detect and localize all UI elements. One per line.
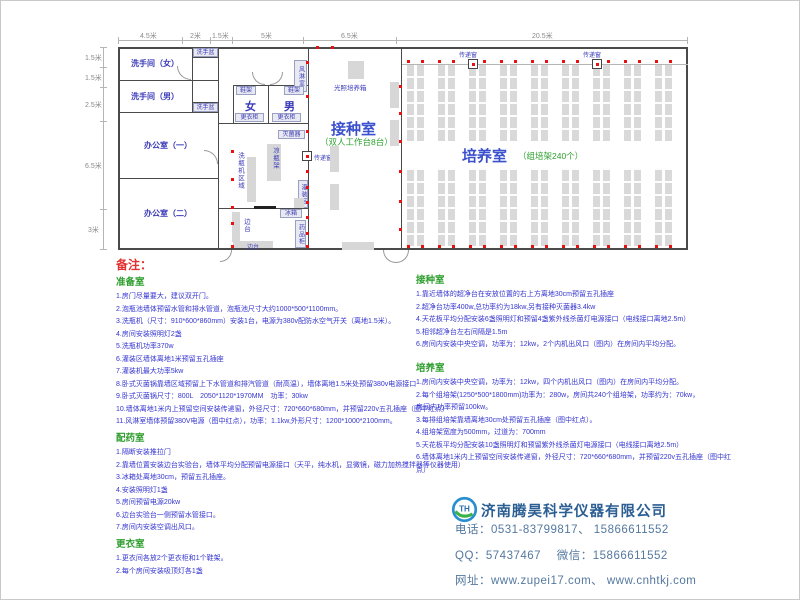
outlet-dot [399,85,402,88]
room-culture-sub: （组培架240个） [518,150,583,162]
notes-section-culture: 培养室 1.房间内安装中央空调，功率为：12kw，四个内机出风口（图内）在房间内… [416,360,734,477]
shoe-rack-2: 鞋架 [284,86,304,95]
notes-list: 1.靠近墙体的超净台在安放位置的右上方离地30cm预留五孔插座2.超净台功率40… [416,289,734,352]
dim-tick [210,37,211,44]
bottle-washer-bench [247,157,256,202]
outlet-dot [231,178,234,181]
company-logo-text: TH [459,504,470,513]
side-bench-label-h: 边台 [247,242,259,251]
notes-heading: 准备室 [116,274,449,288]
side-bench-label-v: 边台 [242,218,249,233]
note-item: 4.房间安装照明灯2盏 [116,329,449,342]
notes-list: 1.隔断安装推拉门2.靠墙位置安装边台实验台，墙体平均分配预留电源接口（天平，纯… [116,447,465,535]
dim-top-6: 20.5米 [532,31,553,41]
culture-shelves-top [407,65,685,141]
clean-bench [390,82,399,108]
note-item: 2.靠墙位置安装边台实验台，墙体平均分配预留电源接口（天平，纯水机，显微镜，磁力… [116,460,465,473]
locker-2: 更衣柜 [272,113,301,122]
sterilizer-label: 灭菌器 [278,130,305,139]
room-male: 男 [284,98,295,114]
note-item: 10.墙体离地1米内上预留空间安装传递窗，外径尺寸：720*660*680mm，… [116,404,449,417]
note-item: 6.边台实验台一侧预留水管接口。 [116,510,465,523]
notes-heading: 培养室 [416,360,734,374]
dim-tick [303,37,304,44]
outlet-dots-row-top [407,60,685,63]
sink-label-bottom: 洗手盆 [193,103,218,112]
fridge-label: 冰箱 [280,209,302,218]
dim-tick [182,37,183,44]
notes-section-dispensing: 配药室 1.隔断安装推拉门2.靠墙位置安装边台实验台，墙体平均分配预留电源接口（… [116,430,465,535]
notes-section-preparation: 准备室 1.房门尽量要大，建议双开门。2.泡瓶池墙体预留水管和排水管道，泡瓶池尺… [116,274,449,429]
note-item: 房间内功率预留100kw。 [416,402,734,415]
dim-line-top [118,40,688,41]
wall [401,47,402,250]
outlet-dot [306,201,309,204]
sink-label-top: 洗手盆 [193,48,218,57]
wall [308,47,309,250]
note-item: 5.洗瓶机功率370w [116,341,449,354]
dim-tick [100,209,107,210]
notes-heading: 接种室 [416,272,734,286]
medicine-cabinet-label: 药品柜 [295,220,306,248]
dim-left-2: 1.5米 [85,73,102,83]
pass-window-2-label: 传递窗 [459,50,477,59]
notes-section-changing: 更衣室 1.更衣间各放2个更衣柜和1个鞋架。2.每个房间安装吸顶灯各1盏 [116,536,228,578]
outlet-dot [316,46,319,49]
dim-top-4: 5米 [261,31,272,41]
company-logo: TH [451,496,478,523]
note-item: 4.组培架宽度为500mm，过道为：700mm [416,427,734,440]
company-qq-wechat: QQ：57437467 微信：15866611552 [455,547,668,563]
remarks-title: 备注： [116,256,152,273]
dim-tick [232,37,233,44]
wall [192,57,218,58]
outlet-dot [231,222,234,225]
dim-tick [100,121,107,122]
dim-tick [396,37,397,44]
dim-tick [118,37,119,44]
dim-left-3: 2.5米 [85,100,102,110]
pass-window-icon [302,151,312,161]
wall [118,80,218,81]
outlet-dot [306,170,309,173]
note-item: 9.卧式灭菌锅尺寸：800L 2050*1120*1970MM 功率：30kw [116,391,449,404]
room-culture: 培养室 [462,145,507,166]
dim-tick [100,87,107,88]
note-item: 1.更衣间各放2个更衣柜和1个鞋架。 [116,553,228,566]
note-item: 6.灌装区墙体离地1米预留五孔插座 [116,354,449,367]
bottle-washer-area-label: 洗瓶机区域 [236,152,243,190]
outlet-dot [306,216,309,219]
dim-top-2: 2米 [190,31,201,41]
company-phone: 电话：0531-83799817、 15866611552 [455,521,669,537]
outlet-dot [399,228,402,231]
dim-left-5: 3米 [88,225,99,235]
wall [268,85,269,123]
dim-tick [687,37,688,44]
note-item: 1.靠近墙体的超净台在安放位置的右上方离地30cm预留五孔插座 [416,289,734,302]
outlet-dots-row-bottom [407,245,685,248]
room-inoculation-sub: （双人工作台8台） [320,136,393,148]
outlet-dot [472,63,475,66]
sliding-door [254,206,276,209]
outlet-dot [231,150,234,153]
note-item: 1.房间内安装中央空调，功率为：12kw，四个内机出风口（图内）在房间内平均分配… [416,377,734,390]
dim-line-left [103,47,104,250]
note-item: 3.每排组培架靠墙离地30cm处预留五孔插座（图中红点）。 [416,415,734,428]
room-office-2: 办公室（二） [118,208,218,219]
clean-bench [342,242,374,250]
cooling-rack-label: 凉瓶架 [271,147,278,170]
outlet-dot [306,232,309,235]
pass-window-icon [468,59,478,69]
culture-shelves-bottom [407,168,685,246]
outlet-dot [399,170,402,173]
notes-list: 1.房间内安装中央空调，功率为：12kw，四个内机出风口（图内）在房间内平均分配… [416,377,734,477]
note-item: 2.每个房间安装吸顶灯各1盏 [116,566,228,579]
dim-top-5: 6.5米 [341,31,358,41]
wall [218,123,308,124]
dim-left-1: 1.5米 [85,53,102,63]
room-toilet-male: 洗手间（男） [118,91,192,102]
light-incubator-label: 光照培养箱 [334,82,367,92]
outlet-dot [331,46,334,49]
side-bench-box-v [232,212,240,242]
notes-list: 1.更衣间各放2个更衣柜和1个鞋架。2.每个房间安装吸顶灯各1盏 [116,553,228,578]
note-item: 3.洗瓶机（尺寸：910*600*860mm）安装1台，电源为380v配防水空气… [116,316,449,329]
dim-top-3: 1.5米 [212,31,229,41]
note-item: 2.每个组培架(1250*500*1800mm)功率为：280w，房间共240个… [416,390,734,403]
note-item: 1.房门尽量要大，建议双开门。 [116,291,449,304]
outlet-dot [596,63,599,66]
outlet-dot [399,112,402,115]
note-item: 4.天花板平均分配安装6盏照明灯和预留4盏紫外线杀菌灯电源接口（电线接口离地2.… [416,314,734,327]
dim-left-4: 6.5米 [85,161,102,171]
notes-section-inoculation: 接种室 1.靠近墙体的超净台在安放位置的右上方离地30cm预留五孔插座2.超净台… [416,272,734,352]
note-item: 1.隔断安装推拉门 [116,447,465,460]
note-item: 5.相邻超净台左右间隔是1.5m [416,327,734,340]
notes-list: 1.房门尽量要大，建议双开门。2.泡瓶池墙体预留水管和排水管道，泡瓶池尺寸大约1… [116,291,449,429]
wall [118,112,218,113]
note-item: 8.卧式灭菌锅靠墙区域预留上下水管道和排汽管道（耐高温），墙体离地1.5米处预留… [116,379,449,392]
wall [233,85,234,123]
note-item: 7.灌装机最大功率5kw [116,366,449,379]
note-item: 2.泡瓶池墙体预留水管和排水管道，泡瓶池尺寸大约1000*500*1100mm。 [116,304,449,317]
pass-window-3-label: 传递窗 [583,50,601,59]
outlet-dot [306,245,309,248]
note-item: 5.天花板平均分配安装10盏照明灯和预留紫外线杀菌灯电源接口（电线接口离地2.5… [416,440,734,453]
note-item: 4.安装照明灯1盏 [116,485,465,498]
pass-window-icon [592,59,602,69]
outlet-dot [306,186,309,189]
room-office-1: 办公室（一） [118,140,218,151]
fridge-box [294,198,304,208]
outlet-dot [306,61,309,64]
note-item: 6.房间内安装中央空调，功率为：12kw，2个内机出风口（图内）在房间内平均分配… [416,339,734,352]
dim-tick [100,47,107,48]
dim-tick [100,67,107,68]
note-item: 7.房间内安装空调出风口。 [116,522,465,535]
dim-top-1: 4.5米 [140,31,157,41]
wall [218,47,219,250]
clean-bench [330,184,339,210]
outlet-dot [231,245,234,248]
notes-heading: 更衣室 [116,536,228,550]
clean-bench [330,146,339,172]
note-item: 3.冰箱处离地30cm，预留五孔插座。 [116,472,465,485]
outlet-dot [399,200,402,203]
shoe-rack-1: 鞋架 [236,86,256,95]
outlet-dot [306,130,309,133]
note-item: 2.超净台功率400w,总功率约为18kw,另有接种灭菌器3.4kw [416,302,734,315]
outlet-dot [399,140,402,143]
note-item: 5.房间预留电源20kw [116,497,465,510]
outlet-dot [306,95,309,98]
outlet-dot [306,155,309,158]
outlet-dot [231,206,234,209]
locker-1: 更衣柜 [235,113,264,122]
notes-heading: 配药室 [116,430,465,444]
company-website: 网址：www.zupei17.com、 www.cnhtkj.com [455,572,696,588]
light-incubator-box [348,61,364,79]
dim-tick [100,249,107,250]
company-name: 济南腾昊科学仪器有限公司 [481,500,667,521]
wall [118,178,218,179]
room-toilet-female: 洗手间（女） [118,58,192,69]
note-item: 6.墙体离地1米内上预留空间安装传递窗，外径尺寸：720*660*680mm，并… [416,452,734,477]
note-item: 11.风淋室墙体预留380V电源（图中红点），功率：1.1kw,外形尺寸：120… [116,416,449,429]
room-female: 女 [245,98,256,114]
